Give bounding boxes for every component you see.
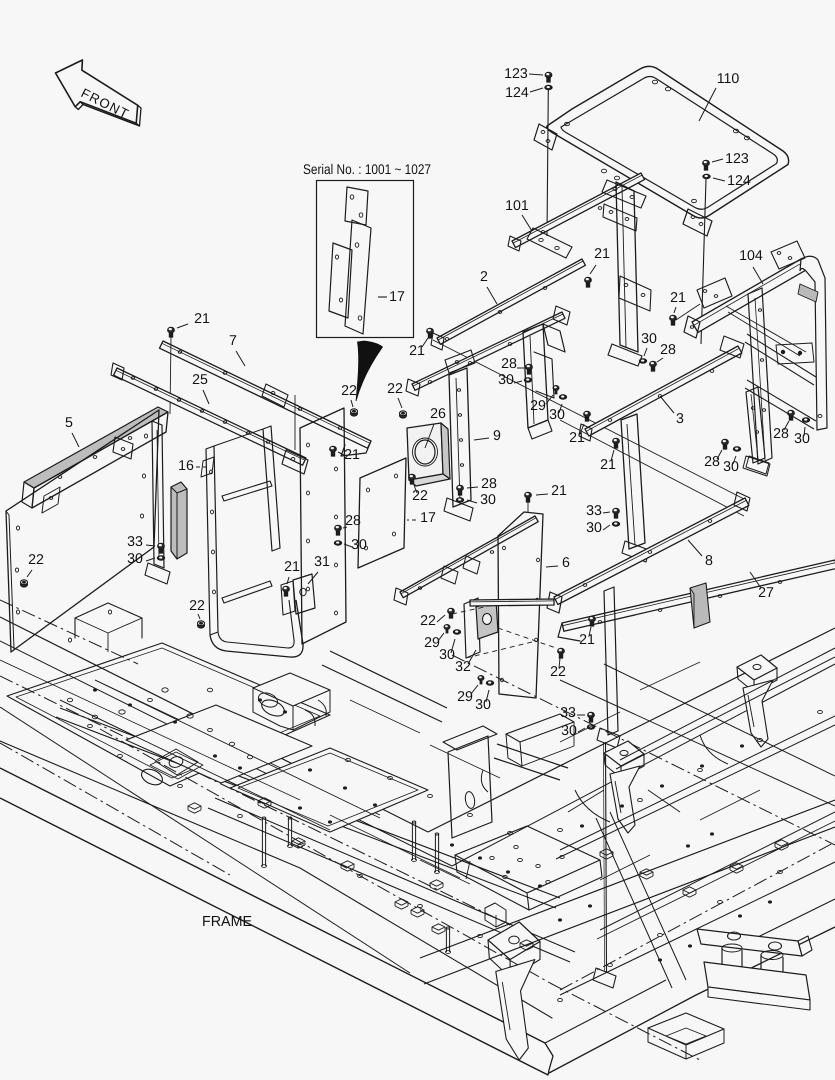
svg-text:Serial No. : 1001 ~ 1027: Serial No. : 1001 ~ 1027: [303, 161, 431, 177]
svg-text:7: 7: [229, 333, 237, 349]
svg-text:30: 30: [498, 372, 514, 388]
svg-text:30: 30: [723, 459, 739, 475]
svg-text:17: 17: [420, 510, 436, 526]
svg-text:123: 123: [725, 151, 749, 167]
svg-text:30: 30: [794, 431, 810, 447]
svg-text:30: 30: [475, 697, 491, 713]
svg-text:29: 29: [424, 635, 440, 651]
svg-text:21: 21: [194, 311, 210, 327]
svg-text:2: 2: [480, 269, 488, 285]
svg-text:25: 25: [192, 372, 208, 388]
svg-text:22: 22: [412, 488, 428, 504]
svg-text:FRAME: FRAME: [202, 914, 252, 930]
svg-text:22: 22: [189, 598, 205, 614]
svg-text:32: 32: [455, 659, 471, 675]
svg-text:22: 22: [387, 381, 403, 397]
svg-text:30: 30: [480, 492, 496, 508]
svg-text:29: 29: [457, 689, 473, 705]
svg-text:26: 26: [430, 406, 446, 422]
svg-text:31: 31: [314, 554, 330, 570]
svg-text:17: 17: [389, 289, 405, 305]
svg-text:21: 21: [579, 632, 595, 648]
svg-text:104: 104: [739, 248, 763, 264]
svg-text:3: 3: [676, 411, 684, 427]
svg-text:22: 22: [28, 552, 44, 568]
svg-text:21: 21: [594, 246, 610, 262]
svg-text:16: 16: [178, 458, 194, 474]
svg-text:5: 5: [65, 415, 73, 431]
svg-text:30: 30: [351, 537, 367, 553]
svg-text:33: 33: [586, 503, 602, 519]
svg-text:110: 110: [717, 71, 740, 87]
svg-text:30: 30: [549, 407, 565, 423]
svg-text:22: 22: [420, 613, 436, 629]
svg-text:21: 21: [284, 559, 300, 575]
svg-text:28: 28: [704, 454, 720, 470]
svg-text:124: 124: [727, 173, 751, 189]
svg-text:22: 22: [550, 664, 566, 680]
svg-text:21: 21: [569, 430, 585, 446]
svg-text:124: 124: [505, 85, 529, 101]
svg-text:22: 22: [341, 383, 357, 399]
svg-text:33: 33: [127, 534, 143, 550]
svg-text:101: 101: [505, 198, 529, 214]
svg-text:123: 123: [504, 66, 528, 82]
svg-text:28: 28: [773, 426, 789, 442]
svg-text:21: 21: [551, 483, 567, 499]
svg-text:9: 9: [493, 428, 501, 444]
svg-text:8: 8: [705, 553, 713, 569]
svg-text:28: 28: [345, 513, 361, 529]
svg-text:28: 28: [481, 476, 497, 492]
svg-text:29: 29: [530, 398, 546, 414]
svg-text:28: 28: [660, 342, 676, 358]
svg-text:30: 30: [586, 520, 602, 536]
svg-text:21: 21: [600, 457, 616, 473]
svg-text:21: 21: [670, 290, 686, 306]
svg-text:30: 30: [641, 331, 657, 347]
svg-text:6: 6: [562, 555, 570, 571]
svg-text:30: 30: [127, 551, 143, 567]
svg-text:28: 28: [501, 356, 517, 372]
